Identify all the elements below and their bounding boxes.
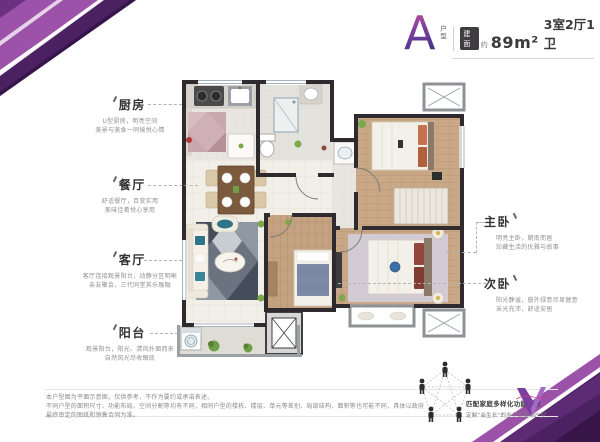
plan-title: A 户型 建面 约 89m² 3室2厅1卫 <box>404 12 600 54</box>
plan-letter: A <box>404 12 435 54</box>
shower-icon <box>274 98 298 132</box>
v-logo <box>514 385 550 419</box>
elevator-shaft <box>266 312 302 354</box>
area-tag-badge: 建面 <box>460 27 478 50</box>
room-label-kitchen: 厨房 U型厨房，明亮空间美景与美食一同愉悦心情 <box>60 96 200 135</box>
bay-window <box>350 306 414 326</box>
bed-master-icon <box>368 238 432 296</box>
flower-decor-icon <box>186 137 192 143</box>
toilet-icon <box>259 134 275 157</box>
room-label-dining: 餐厅 舒适餐厅，百变实用美味佳肴悦心享用 <box>60 176 200 215</box>
area-approx: 约 <box>481 40 488 50</box>
tick-mark <box>113 96 117 102</box>
person-icons <box>419 362 470 422</box>
room-label-master: 主卧 明亮主卧，朝南而居珍藏生活的优雅与故事 <box>484 213 596 252</box>
area-value: 89m² <box>491 33 539 52</box>
wardrobe-second-icon <box>268 262 277 296</box>
tick-mark <box>113 324 117 330</box>
floor-plan <box>160 68 480 368</box>
kitchen-sink-icon <box>228 86 252 106</box>
room-label-second: 次卧 阳光静谧，窗外绿意尽显惬意采光充沛，舒适安居 <box>484 275 596 314</box>
tick-mark <box>513 275 517 281</box>
plant-icon <box>258 295 265 302</box>
title-underline <box>452 58 594 59</box>
plant-icon <box>339 295 346 302</box>
family-pentagon-diagram <box>406 357 492 433</box>
bath-counter-icon <box>300 84 322 104</box>
bedside-table-icon <box>432 172 442 180</box>
wardrobe-icon <box>394 188 448 224</box>
room-label-living: 客厅 客厅连接观景阳台，动静分区明晰亲友聚会，三代同堂其乐融融 <box>60 251 200 290</box>
coffee-table-icon <box>215 252 245 272</box>
dining-table-icon <box>218 166 254 214</box>
plant-icon <box>258 221 265 228</box>
bed-third-icon <box>372 122 434 170</box>
ribbon-top-left <box>0 0 140 96</box>
leader-line-master <box>446 252 476 253</box>
tick-mark <box>513 213 517 219</box>
layout-value: 3室2厅1卫 <box>544 14 600 52</box>
bed-second-icon <box>294 250 332 306</box>
floorplan-page: A 户型 建面 约 89m² 3室2厅1卫 <box>0 0 600 442</box>
tick-mark <box>113 176 117 182</box>
leader-line-master <box>476 222 477 253</box>
decor-icon <box>322 146 327 151</box>
room-label-balcony: 阳台 观景阳台，阳光、清风扑面而来自然风光尽收眼底 <box>60 324 200 363</box>
plant-icon <box>239 144 244 149</box>
plan-letter-tag: 户型 <box>437 25 447 40</box>
tick-mark <box>113 251 117 257</box>
disclaimer: 本户型图为平面示意图，仅供参考，不作为要约或承诺表述。 不同户型的面积尺寸、功能… <box>46 393 426 420</box>
washbasin-icon <box>334 142 356 164</box>
plant-icon <box>358 120 366 128</box>
title-specs: 建面 约 89m² 3室2厅1卫 <box>460 14 600 54</box>
ac-unit <box>424 84 464 110</box>
title-divider <box>453 27 454 51</box>
plant-icon <box>295 141 302 148</box>
ac-unit <box>424 310 464 336</box>
armchair-icon <box>212 216 238 232</box>
leader-line-second <box>338 283 486 284</box>
